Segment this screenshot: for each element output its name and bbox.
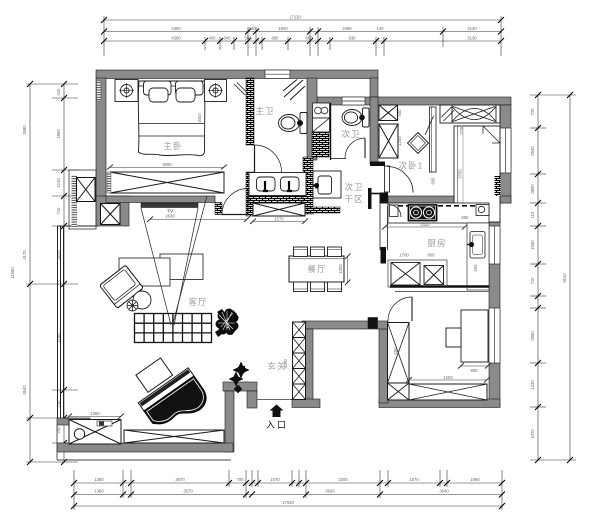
svg-text:4360: 4360 <box>171 36 181 41</box>
svg-text:主卫: 主卫 <box>255 106 274 116</box>
svg-text:3580: 3580 <box>22 125 27 135</box>
svg-text:110: 110 <box>530 211 535 218</box>
svg-text:0840: 0840 <box>530 146 535 156</box>
svg-text:3040: 3040 <box>439 489 449 494</box>
svg-text:720: 720 <box>530 108 535 116</box>
svg-text:2700: 2700 <box>458 169 463 179</box>
svg-text:1060: 1060 <box>470 477 480 482</box>
svg-text:600: 600 <box>397 109 402 117</box>
svg-text:玄关: 玄关 <box>267 361 286 371</box>
svg-text:客厅: 客厅 <box>188 297 207 307</box>
svg-text:140: 140 <box>377 26 385 31</box>
svg-text:610: 610 <box>56 88 61 96</box>
svg-text:1380: 1380 <box>94 477 104 482</box>
svg-text:500: 500 <box>393 347 398 355</box>
svg-text:厨房: 厨房 <box>427 238 446 248</box>
svg-text:900: 900 <box>471 368 479 373</box>
svg-text:17530: 17530 <box>282 500 294 505</box>
svg-text:240: 240 <box>249 26 257 31</box>
svg-text:600: 600 <box>462 215 470 220</box>
svg-text:1600: 1600 <box>278 26 288 31</box>
svg-text:930: 930 <box>349 36 357 41</box>
svg-text:11590: 11590 <box>10 267 15 279</box>
svg-text:0890: 0890 <box>530 331 535 341</box>
svg-text:次卫: 次卫 <box>341 129 360 139</box>
svg-text:1020: 1020 <box>530 429 535 439</box>
svg-text:880: 880 <box>272 36 280 41</box>
svg-text:2300: 2300 <box>338 477 348 482</box>
svg-text:17130: 17130 <box>289 15 301 20</box>
svg-text:1200: 1200 <box>443 375 453 380</box>
svg-text:580: 580 <box>245 36 253 41</box>
svg-text:1380: 1380 <box>94 489 104 494</box>
svg-text:0880: 0880 <box>530 184 535 194</box>
svg-text:1380: 1380 <box>90 411 100 416</box>
svg-text:4170: 4170 <box>22 250 27 260</box>
svg-text:次卧1: 次卧1 <box>399 161 424 171</box>
svg-text:600: 600 <box>431 177 436 185</box>
svg-text:600: 600 <box>473 264 478 272</box>
svg-text:710: 710 <box>530 277 535 285</box>
svg-text:2630: 2630 <box>165 214 175 219</box>
svg-text:700: 700 <box>237 477 245 482</box>
svg-text:1430: 1430 <box>530 380 535 390</box>
svg-text:1700: 1700 <box>399 253 409 258</box>
svg-text:3130: 3130 <box>467 36 477 41</box>
svg-text:4360: 4360 <box>171 26 181 31</box>
svg-text:入口: 入口 <box>266 420 288 430</box>
svg-text:1070: 1070 <box>270 477 280 482</box>
svg-text:640: 640 <box>224 36 232 41</box>
svg-text:9610: 9610 <box>562 273 567 283</box>
svg-text:710: 710 <box>56 207 61 215</box>
svg-text:次卫: 次卫 <box>344 182 363 192</box>
svg-text:2000: 2000 <box>197 113 202 123</box>
svg-text:1300: 1300 <box>338 264 343 274</box>
svg-text:1570: 1570 <box>274 217 284 222</box>
svg-text:1670: 1670 <box>409 477 419 482</box>
svg-text:680: 680 <box>306 36 314 41</box>
svg-text:1200: 1200 <box>397 136 402 146</box>
svg-text:1080: 1080 <box>530 240 535 250</box>
svg-text:2870: 2870 <box>175 477 185 482</box>
svg-text:3570: 3570 <box>183 489 193 494</box>
svg-text:餐厅: 餐厅 <box>307 264 326 274</box>
svg-text:3630: 3630 <box>325 489 335 494</box>
svg-text:1960: 1960 <box>56 129 61 139</box>
svg-text:3640: 3640 <box>22 385 27 395</box>
svg-text:干区: 干区 <box>344 194 363 204</box>
svg-text:2490: 2490 <box>342 26 352 31</box>
svg-text:400: 400 <box>209 36 217 41</box>
svg-text:3060: 3060 <box>162 162 172 167</box>
svg-text:800: 800 <box>428 253 436 258</box>
svg-text:1010: 1010 <box>56 178 61 188</box>
svg-text:2420: 2420 <box>420 222 430 227</box>
svg-text:2700: 2700 <box>459 125 464 135</box>
svg-text:3130: 3130 <box>467 26 477 31</box>
svg-text:主卧: 主卧 <box>163 141 182 151</box>
